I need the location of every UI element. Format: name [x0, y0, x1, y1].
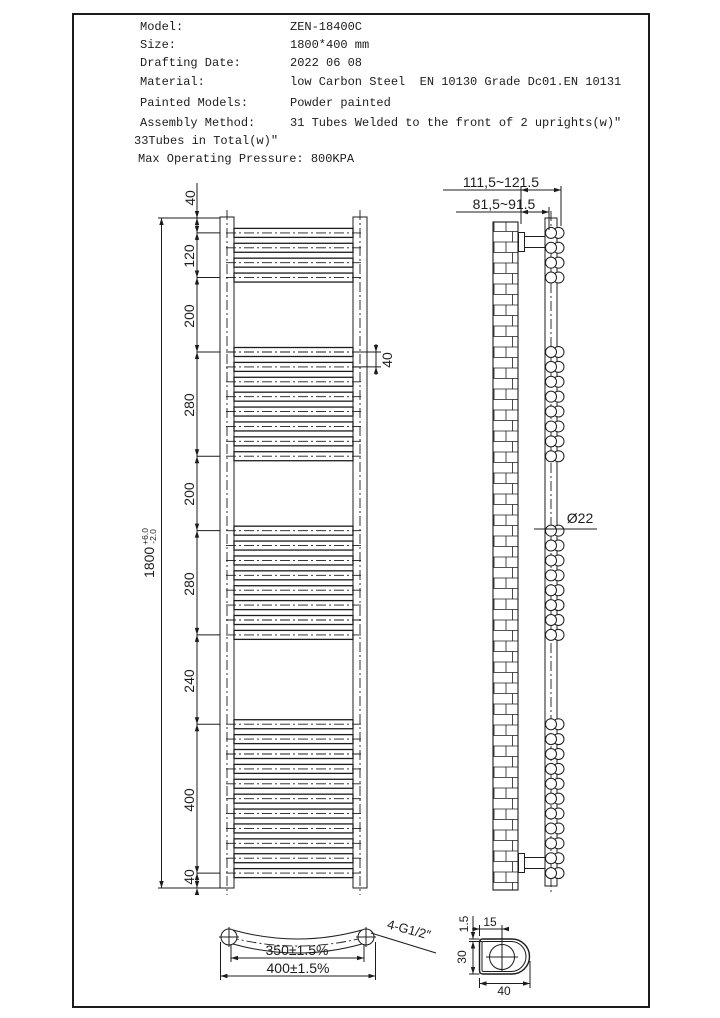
dim-seg-200a: 200	[181, 296, 197, 336]
dim-seg-240: 240	[181, 661, 197, 701]
dim-seg-400: 400	[181, 780, 197, 820]
dim-profile-width: 40	[492, 984, 516, 998]
dim-wall-gap: 81,5~91.5	[456, 196, 552, 212]
dim-seg-200b: 200	[181, 474, 197, 514]
dim-seg-40-bot: 40	[181, 857, 197, 897]
dim-bracket-depth: 111,5~121.5	[441, 174, 561, 190]
dim-tube-pitch: 40	[379, 340, 395, 380]
dim-overall-height: 1800+6.0-2.0	[140, 525, 158, 581]
bottom-bracket-plate	[519, 854, 525, 873]
dim-seg-120: 120	[181, 236, 197, 276]
overall-value: 1800	[141, 547, 157, 578]
dim-tube-centres: 350±1.5%	[247, 942, 347, 958]
dim-overall-width: 400±1.5%	[248, 960, 348, 976]
tube-rows	[226, 228, 361, 877]
dim-seg-40-top: 40	[182, 178, 198, 218]
side-view	[443, 186, 597, 893]
technical-drawing	[0, 0, 720, 1018]
dim-profile-depth: 30	[455, 940, 469, 974]
wall-section	[493, 222, 518, 890]
dim-hole-offset: 15	[478, 915, 502, 929]
top-bracket-arm	[525, 237, 546, 248]
dim-tube-diameter: Ø22	[558, 510, 602, 526]
drawing-sheet: Model:ZEN-18400C Size:1800*400 mm Drafti…	[0, 0, 720, 1018]
bottom-bracket-arm	[525, 858, 546, 869]
dim-wall-thickness: 1.5	[457, 907, 471, 941]
segment-ticks	[195, 211, 322, 895]
overall-tol-minus: -2.0	[149, 528, 157, 545]
dim-seg-280b: 280	[181, 564, 197, 604]
top-bracket-plate	[519, 233, 525, 252]
tube-curve-outer	[233, 930, 362, 939]
dim-seg-280a: 280	[181, 385, 197, 425]
